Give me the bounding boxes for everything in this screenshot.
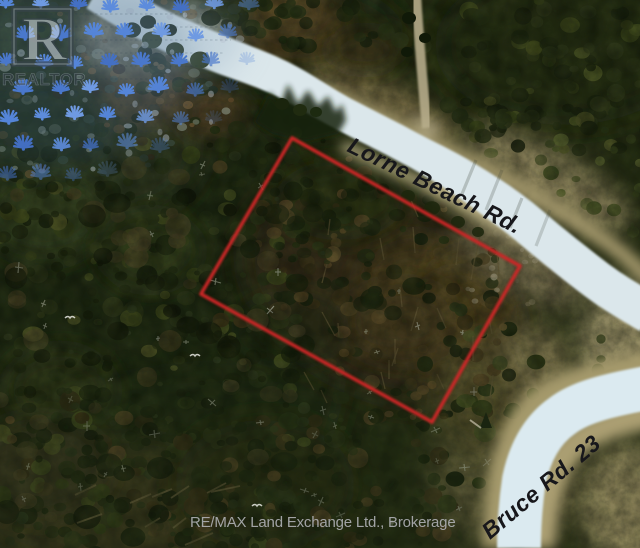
- svg-text:REALTOR: REALTOR: [2, 70, 86, 89]
- svg-text:RE/MAX Land Exchange Ltd., Bro: RE/MAX Land Exchange Ltd., Brokerage: [190, 514, 455, 531]
- svg-text:R: R: [22, 6, 68, 74]
